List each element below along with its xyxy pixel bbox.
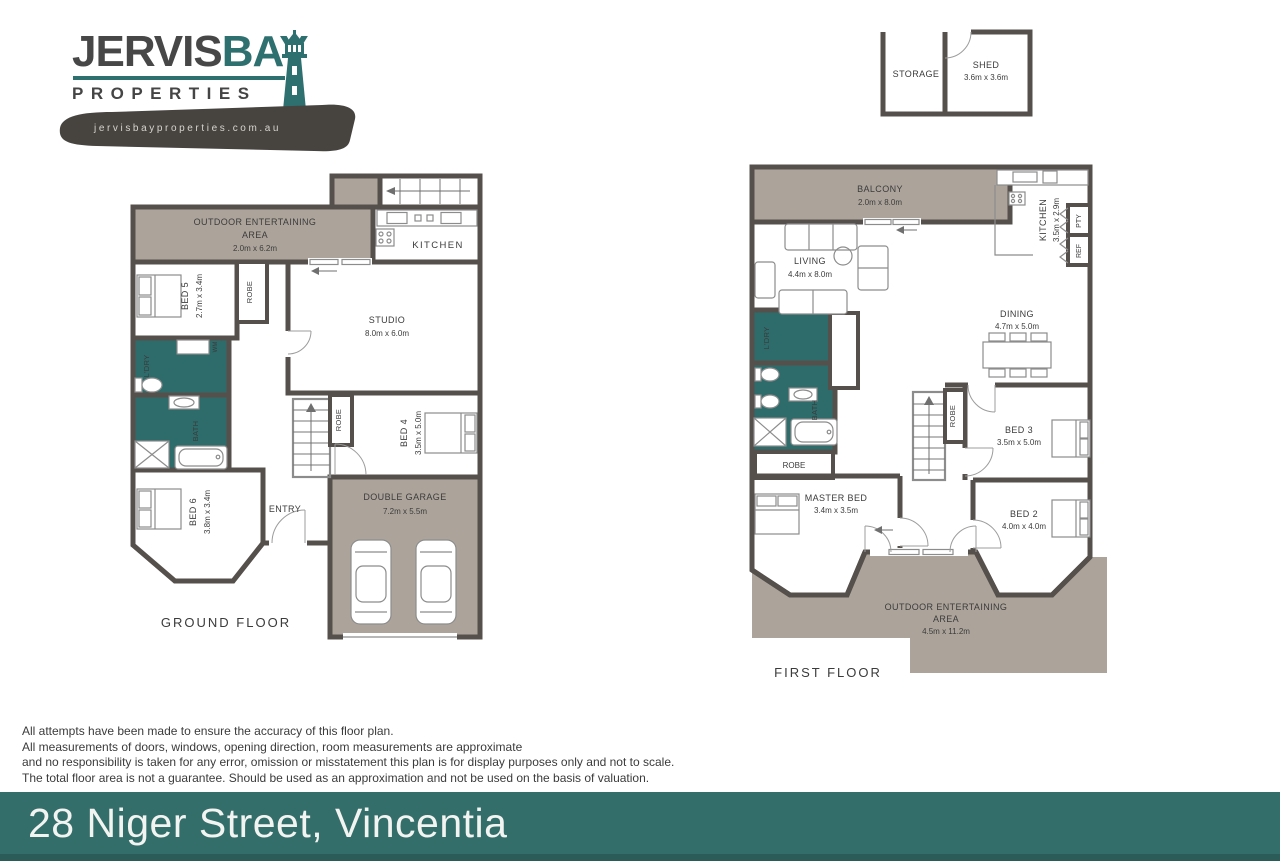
ff-balcony-label: BALCONY xyxy=(857,184,903,194)
ff-bed2-bed-icon xyxy=(1052,500,1090,537)
ff-bath-label: BATH xyxy=(810,400,819,421)
gf-oea-label2: AREA xyxy=(242,230,268,240)
ff-bath-sink-icon xyxy=(789,388,817,401)
gf-stair-landing xyxy=(332,176,380,207)
disclaimer-line-3: and no responsibility is taken for any e… xyxy=(22,755,674,771)
gf-garage-dims: 7.2m x 5.5m xyxy=(383,507,427,516)
gf-car-icon-2 xyxy=(416,540,456,624)
ff-living-dims: 4.4m x 8.0m xyxy=(788,270,832,279)
first-floor-plan: BALCONY 2.0m x 8.0m KITCHEN 3.5m x 2.9m … xyxy=(743,158,1113,688)
ff-pty-label: PTY xyxy=(1076,214,1083,228)
disclaimer-line-2: All measurements of doors, windows, open… xyxy=(22,740,674,756)
gf-shower-icon xyxy=(135,441,169,468)
gf-bed6-label: BED 6 xyxy=(188,498,198,526)
gf-bed6-dims: 3.8m x 3.4m xyxy=(203,490,212,534)
ff-closet xyxy=(830,313,858,388)
shed-label: SHED xyxy=(973,60,1000,70)
ff-robe2-label: ROBE xyxy=(948,405,957,427)
ff-master-label: MASTER BED xyxy=(805,493,868,503)
gf-title: GROUND FLOOR xyxy=(161,615,291,630)
disclaimer-line-1: All attempts have been made to ensure th… xyxy=(22,724,674,740)
floor-plan-page: JERVISBAY PROPERTIES jervisbayproperties… xyxy=(0,0,1280,861)
gf-wm-label: WM xyxy=(213,342,219,353)
gf-bed6-bed-icon xyxy=(137,489,181,529)
ff-oea-label: OUTDOOR ENTERTAINING xyxy=(885,602,1008,612)
agency-logo: JERVISBAY PROPERTIES jervisbayproperties… xyxy=(72,30,402,165)
disclaimer-block: All attempts have been made to ensure th… xyxy=(22,724,674,786)
gf-bed4-label: BED 4 xyxy=(399,419,409,447)
brand-wordmark: JERVISBAY xyxy=(72,30,402,74)
ff-laundry-label: L'DRY xyxy=(762,327,771,350)
gf-robe2-label: ROBE xyxy=(334,409,343,431)
property-address: 28 Niger Street, Vincentia xyxy=(0,800,507,847)
address-banner: 28 Niger Street, Vincentia xyxy=(0,792,1280,861)
ff-balcony xyxy=(752,167,1010,222)
ff-kitchen-label: KITCHEN xyxy=(1038,199,1048,241)
gf-bathtub-icon xyxy=(175,446,227,469)
brand-subtitle: PROPERTIES xyxy=(72,84,402,104)
ff-bed3-bed-icon xyxy=(1052,420,1090,457)
disclaimer-line-4: The total floor area is not a guarantee.… xyxy=(22,771,674,787)
gf-bed4-bed-icon xyxy=(425,413,477,453)
website-text: jervisbayproperties.com.au xyxy=(94,123,281,134)
brand-part-jervis: JERVIS xyxy=(72,27,222,76)
gf-bed4-dims: 3.5m x 5.0m xyxy=(414,411,423,455)
gf-kitchen-label: KITCHEN xyxy=(412,240,464,251)
ff-shower-icon xyxy=(754,418,786,446)
outbuilding-plan: STORAGE SHED 3.6m x 3.6m xyxy=(876,28,1036,120)
gf-bed5-dims: 2.7m x 3.4m xyxy=(195,274,204,318)
ff-ref-label: REF xyxy=(1076,244,1083,258)
ground-floor-plan: OUTDOOR ENTERTAINING AREA 2.0m x 6.2m KI… xyxy=(125,163,490,648)
brand-rule xyxy=(73,76,285,80)
ff-oea-dims: 4.5m x 11.2m xyxy=(922,627,970,636)
gf-bath-sink-icon xyxy=(169,396,199,409)
ff-master-bed-icon xyxy=(755,494,799,534)
ff-dining-dims: 4.7m x 5.0m xyxy=(995,322,1039,331)
ff-bed2-dims: 4.0m x 4.0m xyxy=(1002,522,1046,531)
gf-oea-label: OUTDOOR ENTERTAINING xyxy=(194,217,317,227)
ff-kitchen-dims: 3.5m x 2.9m xyxy=(1052,198,1061,242)
gf-garage-label: DOUBLE GARAGE xyxy=(363,492,446,502)
ff-dining-table xyxy=(983,333,1051,377)
ff-title: FIRST FLOOR xyxy=(774,665,882,680)
gf-bath-label: BATH xyxy=(191,421,200,442)
gf-bed5-bed-icon xyxy=(137,275,181,317)
ff-oea-label2: AREA xyxy=(933,614,959,624)
ff-robe1-label: ROBE xyxy=(783,461,806,470)
gf-bed5-label: BED 5 xyxy=(180,282,190,310)
ff-bed3-dims: 3.5m x 5.0m xyxy=(997,438,1041,447)
gf-car-icon-1 xyxy=(351,540,391,624)
gf-studio-label: STUDIO xyxy=(369,315,405,325)
ff-balcony-dims: 2.0m x 8.0m xyxy=(858,198,902,207)
gf-laundry-toilet-icon xyxy=(135,378,162,392)
gf-garage-door-opening xyxy=(343,633,457,641)
gf-washing-machine-icon xyxy=(177,340,209,354)
gf-entry-label: ENTRY xyxy=(269,504,301,514)
ff-bed3-label: BED 3 xyxy=(1005,425,1033,435)
ff-dining-label: DINING xyxy=(1000,309,1034,319)
storage-label: STORAGE xyxy=(893,69,940,79)
gf-studio-room xyxy=(288,262,480,393)
gf-oea-dims: 2.0m x 6.2m xyxy=(233,244,277,253)
shed-dims: 3.6m x 3.6m xyxy=(964,73,1008,82)
gf-studio-dims: 8.0m x 6.0m xyxy=(365,329,409,338)
ff-bed2-label: BED 2 xyxy=(1010,509,1038,519)
gf-robe1-label: ROBE xyxy=(245,281,254,303)
gf-top-stairs xyxy=(380,176,480,207)
ff-living-label: LIVING xyxy=(794,256,826,266)
gf-laundry-label: L'DRY xyxy=(142,355,151,378)
ff-bathtub-icon xyxy=(791,419,837,445)
ff-master-dims: 3.4m x 3.5m xyxy=(814,506,858,515)
